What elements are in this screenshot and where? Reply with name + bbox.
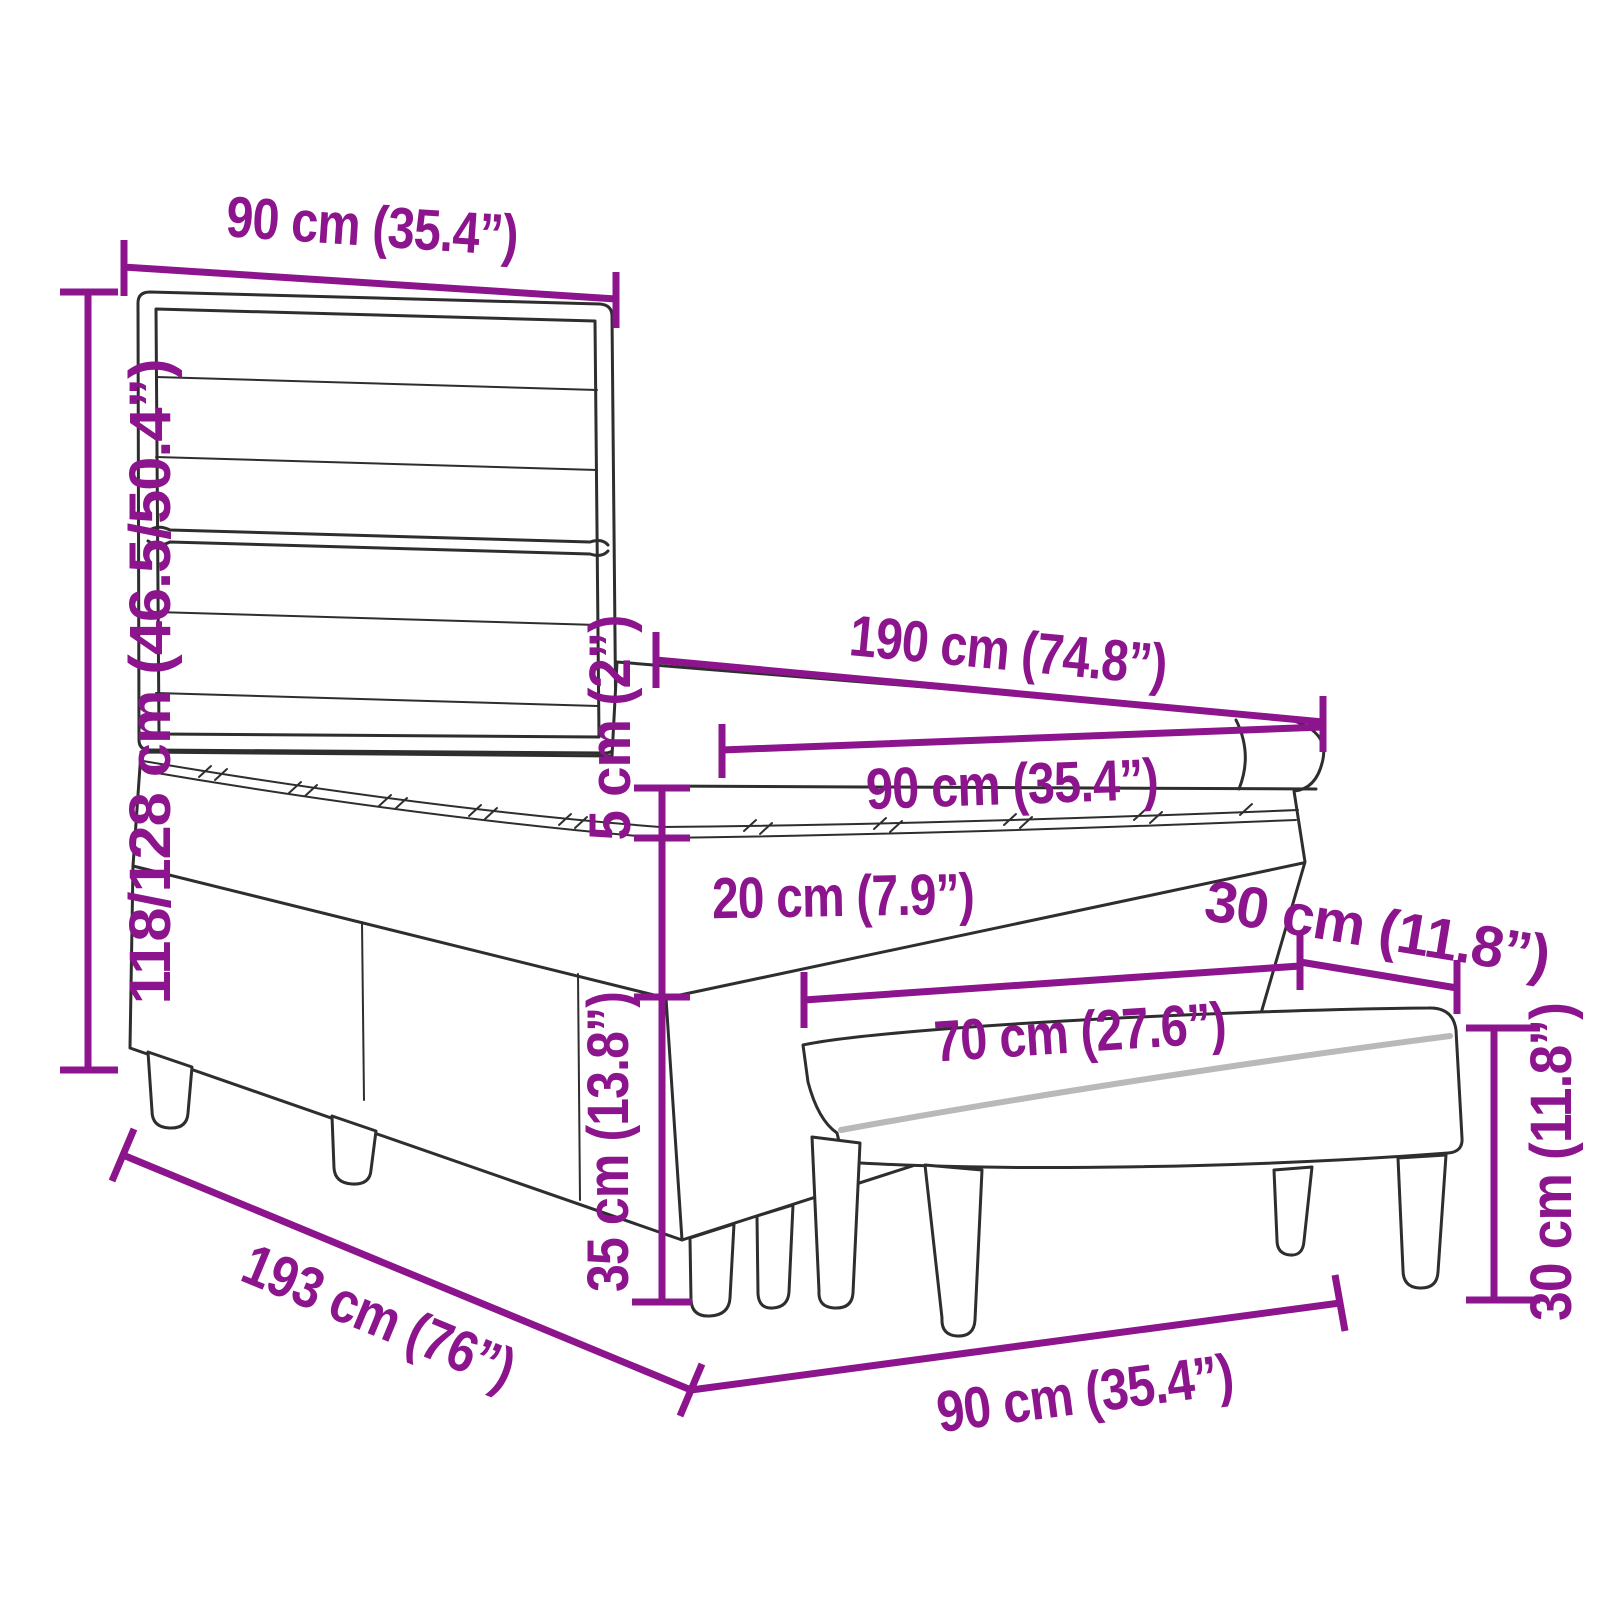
diagram-page: 90 cm (35.4”) 118/128 cm (46.5/50.4”) 19… bbox=[0, 0, 1600, 1600]
bed-leg bbox=[757, 1205, 793, 1308]
dimension-headboard-height: 118/128 cm (46.5/50.4”) bbox=[60, 292, 183, 1070]
dimension-bed-width: 90 cm (35.4”) bbox=[691, 1275, 1345, 1445]
headboard-outer-panel bbox=[138, 292, 616, 753]
bench-leg bbox=[1274, 1167, 1312, 1255]
bed-leg bbox=[148, 1052, 192, 1128]
dimension-label: 30 cm (11.8”) bbox=[1519, 1003, 1584, 1321]
dimension-label: 90 cm (35.4”) bbox=[933, 1342, 1237, 1445]
furniture-drawing bbox=[130, 292, 1462, 1336]
bench-leg bbox=[1398, 1155, 1446, 1288]
dimension-label: 35 cm (13.8”) bbox=[576, 992, 641, 1292]
dimension-label: 90 cm (35.4”) bbox=[224, 184, 520, 268]
dimension-label: 118/128 cm (46.5/50.4”) bbox=[118, 360, 183, 1005]
headboard bbox=[138, 292, 616, 753]
bed-dimensions-diagram: 90 cm (35.4”) 118/128 cm (46.5/50.4”) 19… bbox=[0, 0, 1600, 1600]
dimension-base-height: 35 cm (13.8”) bbox=[576, 992, 641, 1292]
bed-leg bbox=[690, 1224, 734, 1316]
dimension-mattress-thickness: 20 cm (7.9”) bbox=[711, 862, 974, 932]
dimension-bench-height: 30 cm (11.8”) bbox=[1466, 1003, 1584, 1321]
dimension-label: 20 cm (7.9”) bbox=[711, 862, 974, 932]
dimension-label: 90 cm (35.4”) bbox=[865, 747, 1159, 822]
bench-leg bbox=[925, 1165, 982, 1336]
dimension-label: 5 cm (2”) bbox=[578, 616, 643, 841]
bench-leg bbox=[812, 1137, 860, 1308]
